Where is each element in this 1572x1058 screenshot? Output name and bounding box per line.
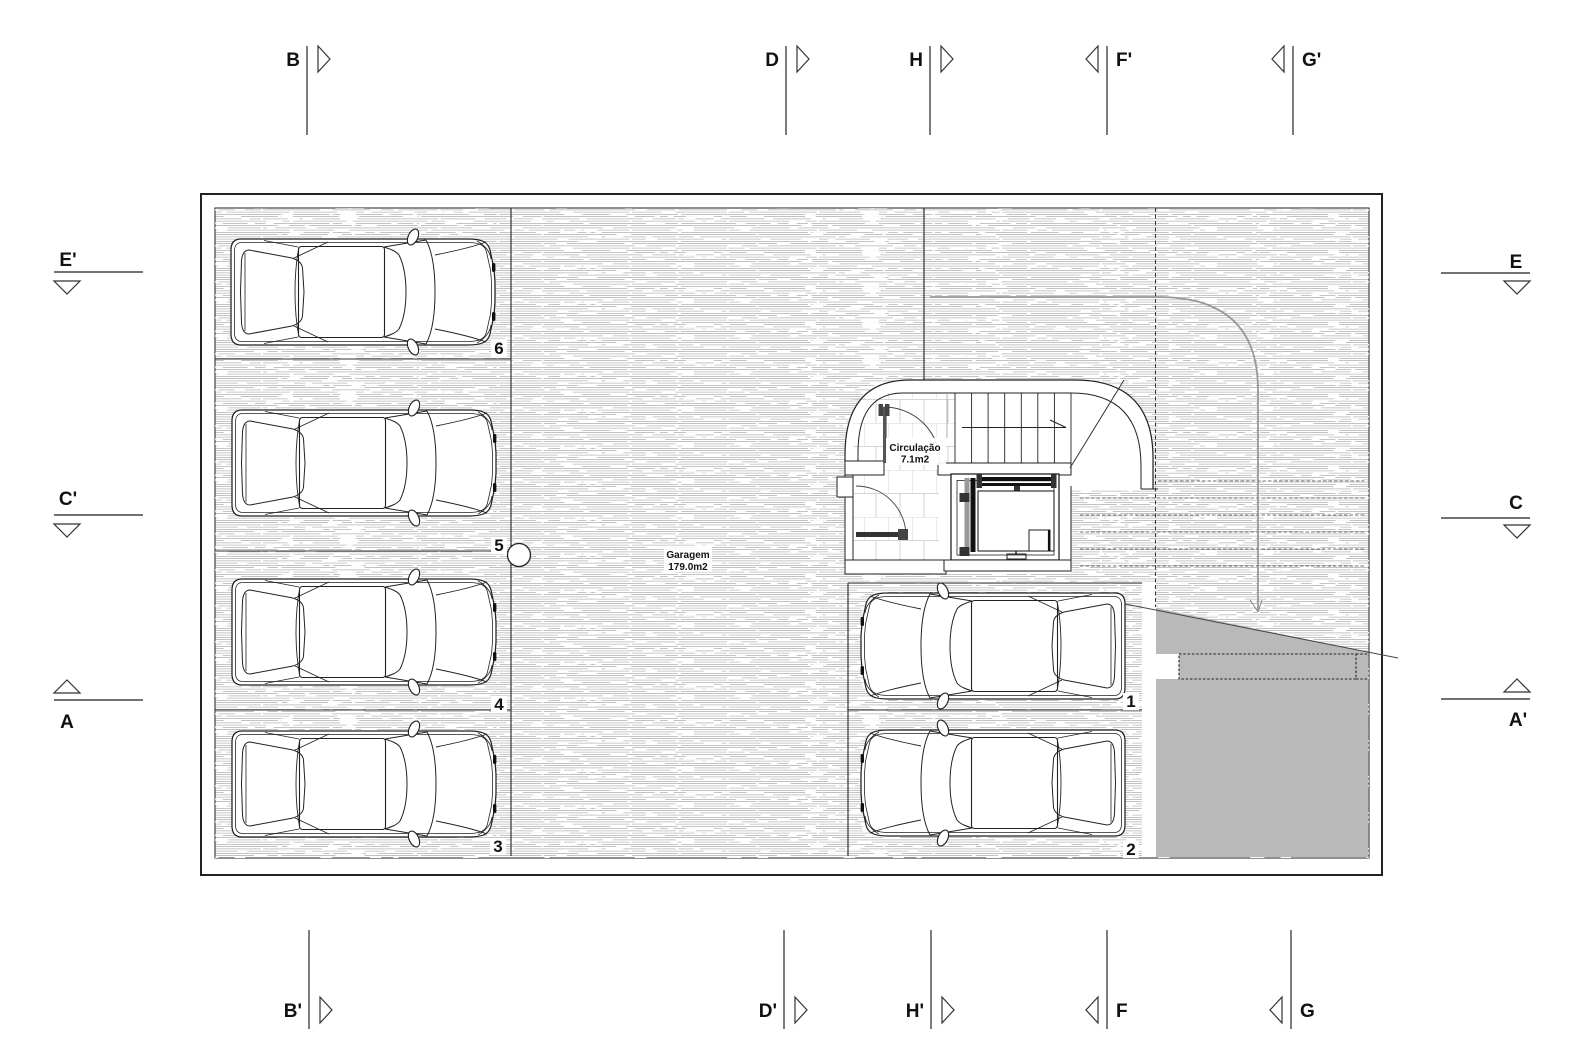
svg-text:H': H': [906, 1001, 924, 1022]
svg-text:A': A': [1509, 710, 1527, 731]
svg-text:F': F': [1116, 50, 1132, 71]
svg-text:6: 6: [494, 339, 503, 358]
svg-text:C': C': [59, 489, 77, 510]
svg-text:G': G': [1302, 50, 1321, 71]
svg-text:2: 2: [1126, 840, 1135, 859]
svg-text:C: C: [1509, 493, 1523, 514]
svg-text:B': B': [284, 1001, 302, 1022]
svg-text:G: G: [1300, 1001, 1315, 1022]
svg-text:Circulação: Circulação: [889, 443, 940, 454]
svg-text:E: E: [1510, 252, 1523, 273]
svg-text:A: A: [60, 712, 74, 733]
svg-text:4: 4: [494, 695, 504, 714]
svg-text:Garagem: Garagem: [666, 550, 709, 561]
svg-text:3: 3: [493, 837, 502, 856]
svg-text:5: 5: [494, 536, 503, 555]
svg-text:D: D: [765, 50, 779, 71]
svg-text:D': D': [759, 1001, 777, 1022]
svg-text:7.1m2: 7.1m2: [901, 455, 930, 466]
svg-text:F: F: [1116, 1001, 1128, 1022]
svg-text:179.0m2: 179.0m2: [668, 562, 708, 573]
svg-text:E': E': [59, 250, 76, 271]
svg-text:B: B: [286, 50, 300, 71]
svg-text:1: 1: [1126, 692, 1135, 711]
svg-text:H: H: [909, 50, 923, 71]
